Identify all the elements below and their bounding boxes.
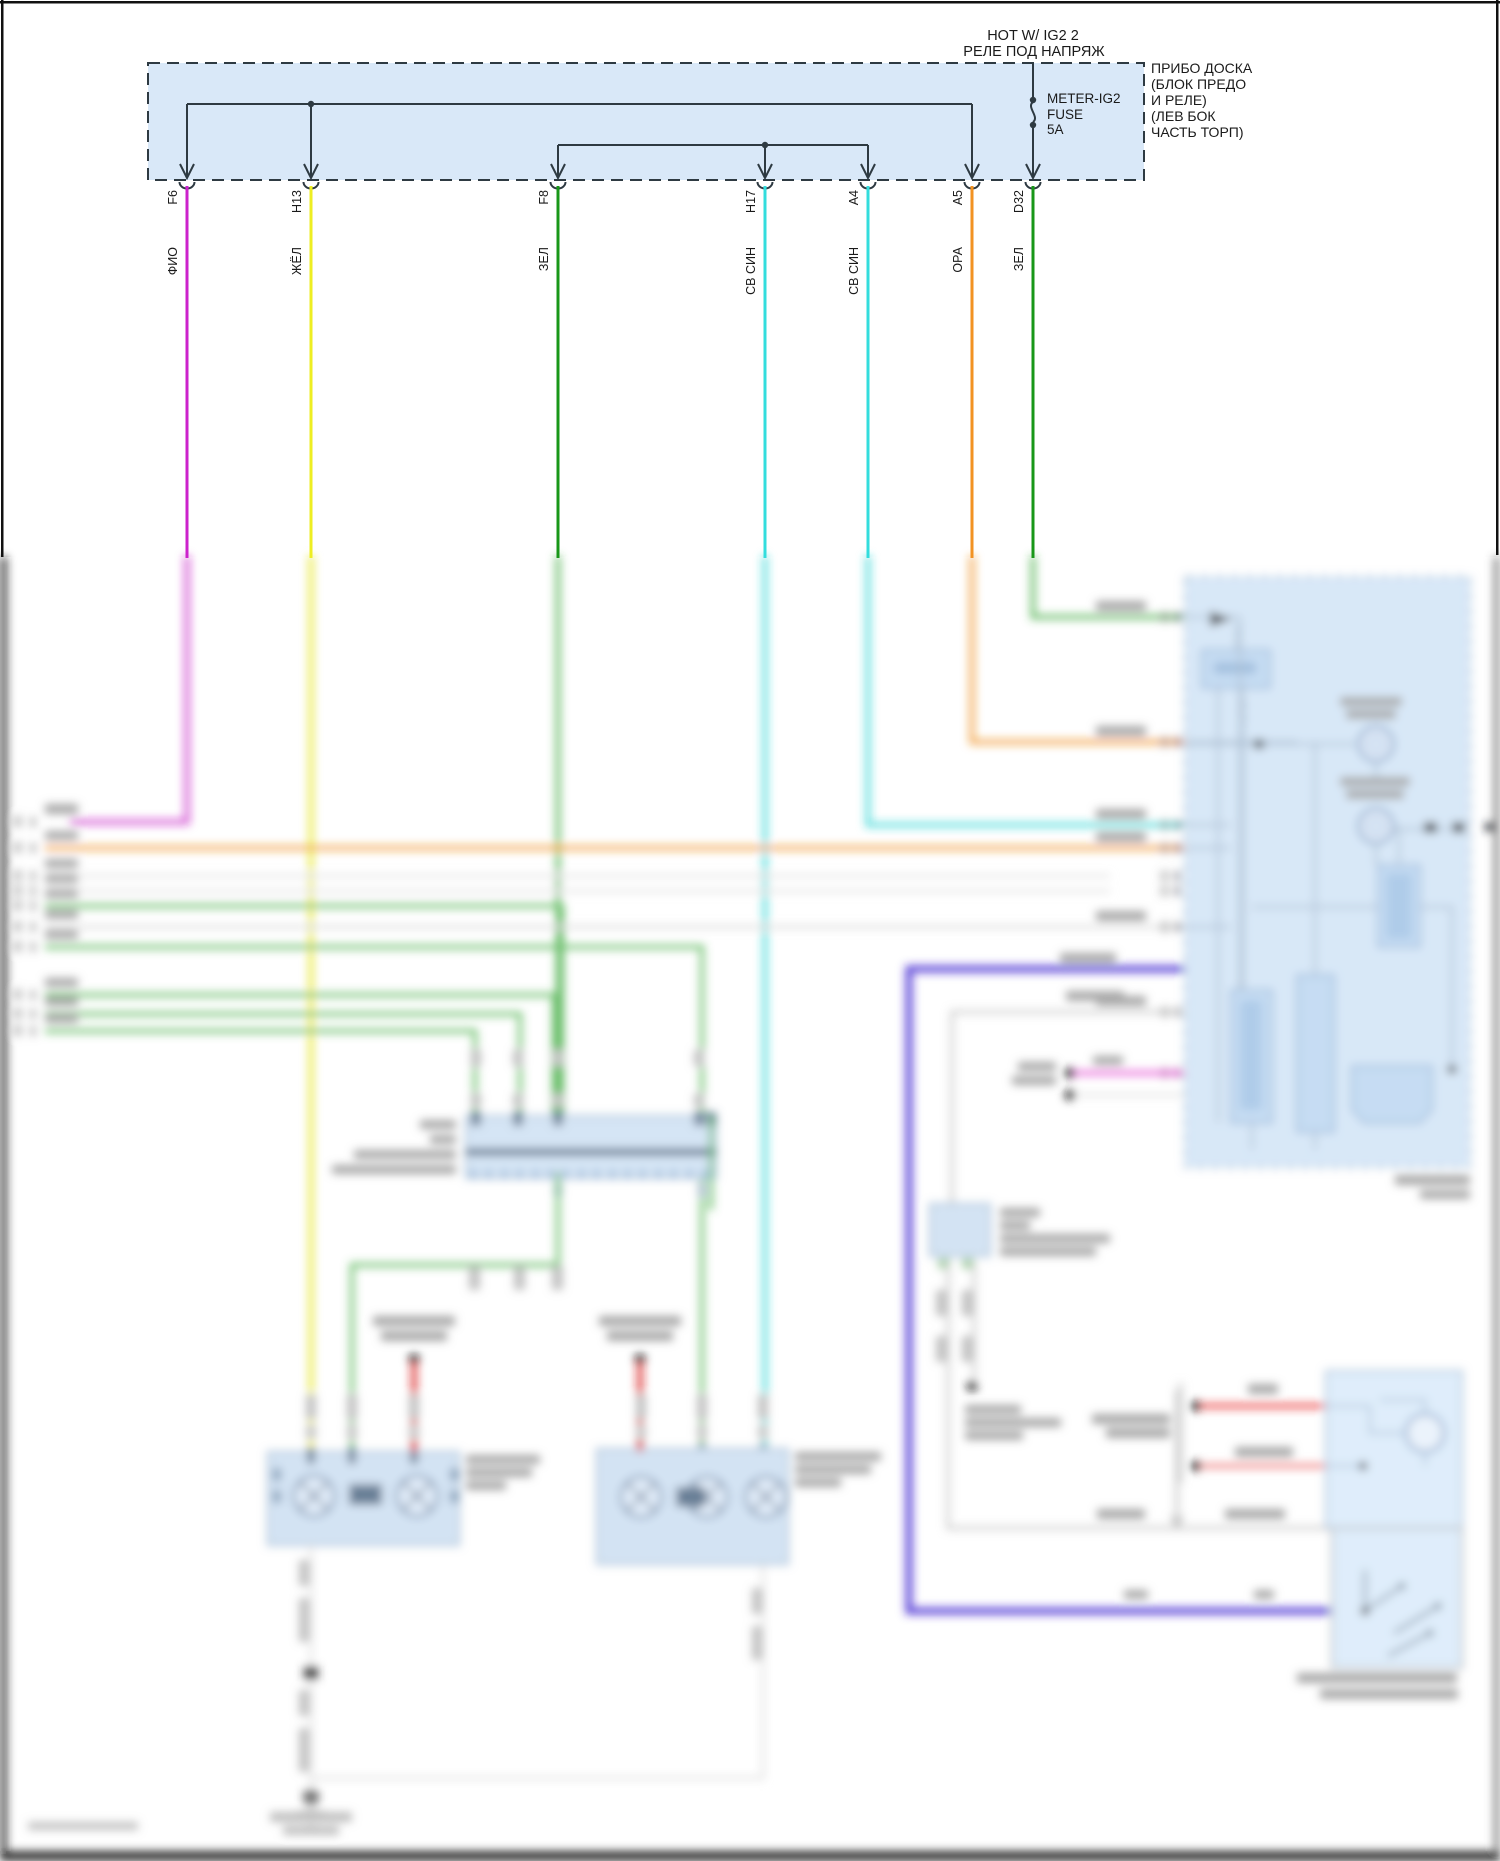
svg-text:ЖЁЛ: ЖЁЛ — [290, 247, 304, 275]
svg-text:A4: A4 — [847, 190, 861, 205]
svg-text:(ЛЕВ БОК: (ЛЕВ БОК — [1151, 108, 1216, 124]
svg-text:ЗЕЛ: ЗЕЛ — [537, 247, 551, 271]
svg-text:ПРИБО ДОСКА: ПРИБО ДОСКА — [1151, 60, 1253, 76]
svg-text:И РЕЛЕ): И РЕЛЕ) — [1151, 92, 1207, 108]
svg-text:F8: F8 — [537, 190, 551, 205]
svg-text:FUSE: FUSE — [1047, 107, 1083, 122]
svg-text:METER-IG2: METER-IG2 — [1047, 91, 1121, 106]
svg-text:H17: H17 — [744, 190, 758, 213]
svg-text:ФИО: ФИО — [166, 247, 180, 275]
svg-text:ЗЕЛ: ЗЕЛ — [1012, 247, 1026, 271]
svg-text:СВ СИН: СВ СИН — [847, 247, 861, 295]
svg-text:HOT W/ IG2 2: HOT W/ IG2 2 — [987, 28, 1079, 44]
svg-text:СВ СИН: СВ СИН — [744, 247, 758, 295]
svg-text:A5: A5 — [951, 190, 965, 205]
svg-text:H13: H13 — [290, 190, 304, 213]
svg-text:РЕЛЕ ПОД НАПРЯЖ: РЕЛЕ ПОД НАПРЯЖ — [963, 44, 1105, 60]
svg-text:5A: 5A — [1047, 122, 1064, 137]
svg-text:ЧАСТЬ ТОРП): ЧАСТЬ ТОРП) — [1151, 124, 1244, 140]
svg-text:(БЛОК ПРЕДО: (БЛОК ПРЕДО — [1151, 76, 1246, 92]
svg-text:F6: F6 — [166, 190, 180, 205]
svg-text:D32: D32 — [1012, 190, 1026, 213]
svg-text:ОРА: ОРА — [951, 246, 965, 272]
